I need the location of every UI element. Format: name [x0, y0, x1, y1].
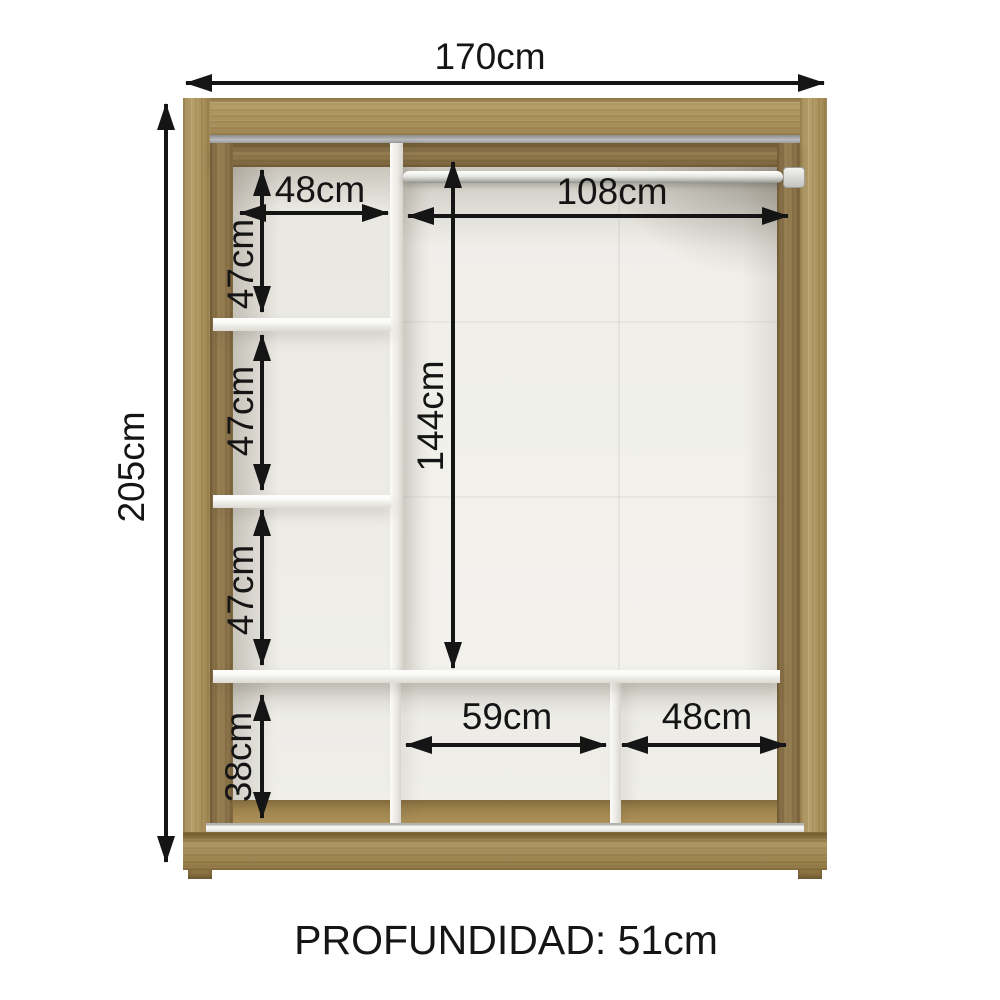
right-foot — [798, 870, 822, 879]
wardrobe-dimension-diagram: 170cm 205cm 48cm 47cm 47cm 47cm 38cm 108… — [0, 0, 1000, 1000]
bottom-right-width-label: 48cm — [627, 697, 787, 737]
total-height-arrow — [164, 104, 168, 862]
top-inner-bevel — [210, 143, 800, 167]
frame-top-panel — [183, 98, 827, 135]
bottom-middle-width-label: 59cm — [427, 697, 587, 737]
bottom-front-rail — [206, 823, 804, 832]
total-height-label: 205cm — [114, 387, 154, 547]
center-divider — [390, 143, 403, 670]
depth-label: PROFUNDIDAD: 51cm — [246, 917, 766, 963]
frame-left-panel — [183, 98, 210, 870]
bottom-middle-width-arrow — [406, 743, 606, 747]
frame-right-panel — [800, 98, 827, 870]
bottom-right-width-arrow — [622, 743, 786, 747]
bottom-left-height-arrow — [260, 695, 264, 818]
base-plinth — [183, 832, 827, 870]
left-gap1-label: 47cm — [223, 209, 259, 319]
rod-width-arrow — [408, 214, 788, 218]
total-width-label: 170cm — [390, 37, 590, 77]
total-width-arrow — [186, 81, 824, 85]
left-foot — [188, 870, 212, 879]
rod-width-label: 108cm — [512, 172, 712, 212]
shelf-1 — [213, 318, 391, 331]
back-panel-main-section — [403, 167, 777, 670]
left-gap3-label: 47cm — [223, 535, 259, 645]
hanging-rod-bracket — [783, 167, 805, 188]
bottom-floor-panel — [233, 800, 777, 823]
sliding-door-track — [210, 135, 800, 143]
main-height-arrow — [451, 162, 455, 668]
bottom-divider-1 — [390, 683, 401, 823]
shelf-2 — [213, 495, 391, 508]
left-gap2-label: 47cm — [223, 356, 259, 466]
left-column-width-label: 48cm — [240, 170, 400, 210]
main-height-label: 144cm — [413, 346, 449, 486]
bottom-divider-2 — [610, 683, 621, 823]
bottom-left-height-label: 38cm — [221, 702, 257, 812]
shelf-3 — [213, 670, 780, 683]
